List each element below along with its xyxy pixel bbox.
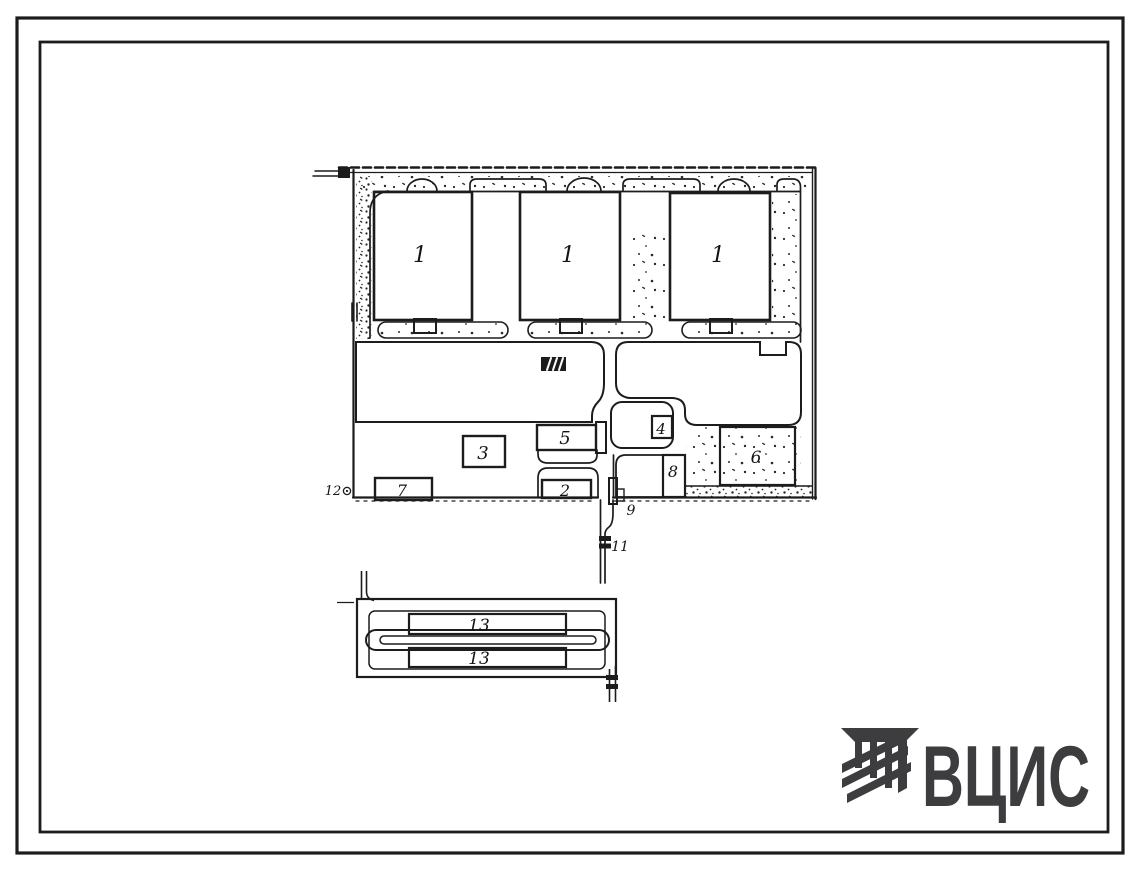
object-10-marker [541,357,566,371]
label-building-13-lower: 13 [468,649,490,669]
lower-entry-line [362,571,375,601]
label-building-6: 6 [751,448,762,468]
site-plan-drawing: 1 1 1 3 5 2 7 6 8 4 [0,0,1139,869]
label-building-1-left: 1 [413,243,427,268]
label-building-13-upper: 13 [468,616,490,636]
ground-patch-object8 [616,455,663,497]
vcis-logo-text: ВЦИС [922,729,1090,825]
road-curbs [538,450,614,497]
building-forecourt-strips [378,322,801,338]
top-road-curbs [370,178,801,342]
logo: ВЦИС [841,728,1090,825]
exit-road: 11 [599,500,629,583]
entrance-road [313,167,350,178]
ground-patch-right [616,342,801,425]
label-building-4: 4 [655,420,666,438]
culvert-band-1 [599,536,611,541]
lower-exit-line [606,666,618,702]
label-building-3: 3 [477,443,488,464]
main-site-plan: 1 1 1 3 5 2 7 6 8 4 [313,167,816,583]
label-marker-11: 11 [611,539,629,555]
drawing-sheet: 1 1 1 3 5 2 7 6 8 4 [0,0,1139,869]
label-building-1-right: 1 [711,243,725,268]
ground-patch-left [356,342,604,422]
vcis-logo-icon [841,728,919,803]
label-building-1-middle: 1 [561,243,575,268]
buildings-1: 1 1 1 [374,192,770,333]
label-building-5: 5 [559,428,570,449]
loop-road-inner [380,636,596,644]
building-5-annex [596,422,606,453]
label-marker-12: 12 [325,484,342,499]
lower-site-plan: 13 13 [337,571,618,702]
culvert-band-2 [599,544,611,549]
object-12: 12 [325,484,351,499]
entrance-gate-marker [338,167,350,178]
label-building-7: 7 [397,481,408,500]
label-building-8: 8 [668,462,678,481]
inner-frame-border [40,42,1108,832]
label-marker-9: 9 [627,503,636,519]
label-building-2: 2 [559,481,570,500]
